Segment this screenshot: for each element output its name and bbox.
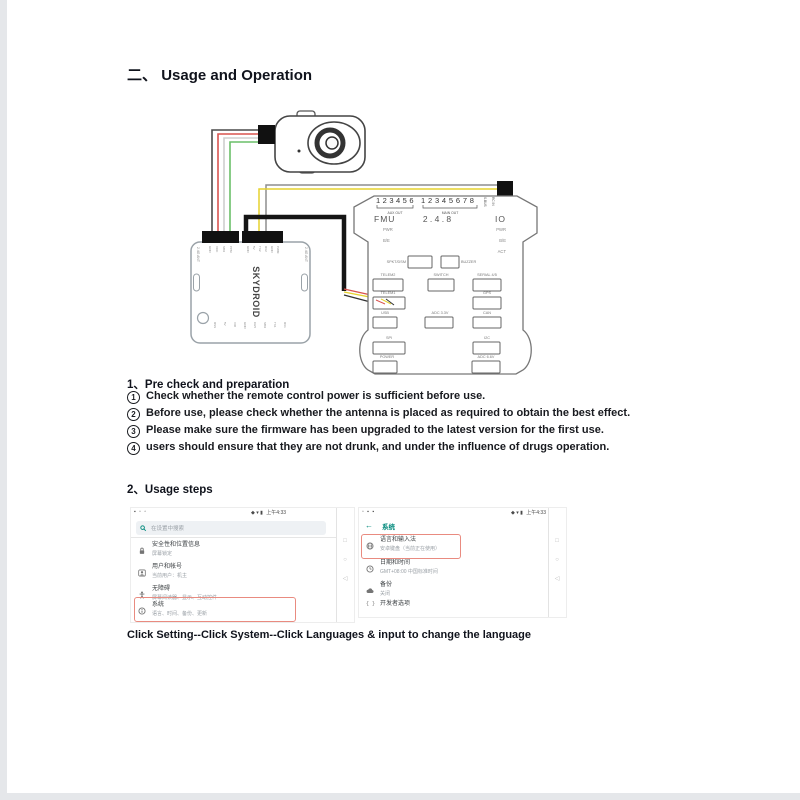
caption-text: Click Setting--Click System--Click Langu…	[127, 629, 531, 641]
receiver-brand: SKYDROID	[251, 266, 261, 318]
svg-text:PWR: PWR	[496, 227, 506, 232]
row-title: 开发者选项	[380, 601, 410, 608]
nav-back-button[interactable]: ◁	[343, 576, 348, 582]
backup-cloud-icon	[366, 582, 380, 600]
circled-number: 4	[127, 442, 140, 455]
svg-text:TX2: TX2	[258, 246, 262, 252]
receiver-connector-left	[202, 231, 239, 243]
fc-aux-pins: 123456	[376, 196, 416, 205]
clock-icon	[366, 560, 380, 578]
screenshot-settings: ▪ ▫ ▫ ◆ ▾ ▮ 上午4:33 在设置中搜索 安全性和位置信息 屏幕锁定	[130, 507, 355, 623]
android-nav-bar: □ ○ ◁	[549, 538, 565, 582]
svg-text:GND: GND	[208, 246, 212, 254]
nav-home-button[interactable]: ○	[555, 557, 559, 563]
svg-text:PPM: PPM	[229, 246, 233, 253]
system-row-developer[interactable]: { } 开发者选项	[359, 601, 410, 608]
list-item-text: users should ensure that they are not dr…	[146, 441, 609, 453]
fc-switch-label: SWITCH	[434, 273, 449, 277]
fc-telem1-label: TELEM1	[381, 291, 396, 295]
row-subtitle: 当前用户：机主	[152, 573, 187, 579]
page-bottom-margin	[0, 793, 800, 800]
row-title: 无障碍	[152, 586, 217, 593]
page-title: 二、 Usage and Operation	[127, 64, 312, 85]
status-right-icons: ◆ ▾ ▮	[511, 510, 523, 516]
camera-connector	[258, 125, 275, 144]
screw-hole	[198, 313, 209, 324]
fc-main-pins: 12345678	[421, 196, 477, 205]
fc-usb-label: USB	[381, 311, 389, 315]
svg-text:SBU: SBU	[222, 246, 226, 252]
circled-number: 3	[127, 425, 140, 438]
fc-telem2-label: TELEM2	[381, 273, 396, 277]
list-item-text: Please make sure the firmware has been u…	[146, 424, 604, 436]
svg-text:B/E: B/E	[383, 238, 390, 243]
status-time: 上午4:33	[526, 510, 546, 516]
nav-back-button[interactable]: ◁	[555, 576, 560, 582]
highlight-box-system	[134, 597, 296, 622]
fc-fmu-label: FMU	[374, 214, 395, 224]
ant-label-right: 2.4G ANT	[304, 247, 308, 262]
fc-io-label: IO	[495, 214, 506, 224]
circled-number: 1	[127, 391, 140, 404]
screenshot-system: ▫ ▪ ▪ ◆ ▾ ▮ 上午4:33 ← 系统 语言和输入法 安卓键盘（当前正在…	[358, 507, 567, 618]
svg-text:PWR: PWR	[383, 227, 393, 232]
fc-i2c-label: I2C	[484, 336, 490, 340]
app-header-title: 系统	[382, 521, 395, 531]
row-subtitle: GMT+08:00 中国标准时间	[380, 569, 438, 575]
flight-controller: 123456 AUX OUT 12345678 MAIN OUT S.BUS R…	[354, 196, 537, 374]
svg-text:SBU: SBU	[263, 322, 267, 328]
back-arrow-icon[interactable]: ←	[365, 522, 373, 530]
nav-home-button[interactable]: ○	[343, 557, 347, 563]
dev-braces-icon: { }	[366, 601, 380, 608]
fc-spi-label: SPI	[386, 336, 392, 340]
list-item: 4 users should ensure that they are not …	[127, 441, 707, 458]
system-list: ▫ ▪ ▪ ◆ ▾ ▮ 上午4:33 ← 系统 语言和输入法 安卓键盘（当前正在…	[359, 508, 549, 617]
divider	[131, 537, 336, 538]
svg-text:RX2: RX2	[264, 246, 268, 252]
app-header: ← 系统	[365, 521, 395, 531]
svg-text:5V: 5V	[223, 322, 227, 326]
svg-text:RX1: RX1	[283, 322, 287, 328]
precheck-list: 1 Check whether the remote control power…	[127, 390, 707, 458]
status-left-icons: ▫ ▪ ▪	[362, 509, 375, 515]
svg-text:5V: 5V	[252, 246, 256, 250]
svg-text:VCC: VCC	[215, 246, 219, 253]
status-time: 上午4:33	[266, 510, 286, 516]
nav-recents-button[interactable]: □	[343, 538, 347, 544]
fc-adc66-label: ADC 6.6V	[478, 355, 495, 359]
fc-sbus-label: S.BUS	[483, 197, 487, 207]
fc-serial45-label: SERIAL 4/5	[477, 273, 497, 277]
android-nav-bar: □ ○ ◁	[337, 538, 353, 582]
svg-text:RSS: RSS	[213, 322, 217, 328]
settings-row-security[interactable]: 安全性和位置信息 屏幕锁定	[131, 542, 200, 560]
fc-version-label: 2 . 4 . 8	[423, 214, 452, 224]
row-title: 安全性和位置信息	[152, 542, 200, 549]
settings-row-users[interactable]: 用户和帐号 当前用户：机主	[131, 564, 187, 582]
fc-spkt-label: SPKT/DSM	[387, 260, 406, 264]
list-item-text: Before use, please check whether the ant…	[146, 407, 630, 419]
svg-text:CH5: CH5	[253, 322, 257, 328]
row-title: 备份	[380, 582, 392, 589]
search-placeholder: 在设置中搜索	[151, 524, 184, 532]
fc-power-label: POWER	[380, 355, 395, 359]
status-bar: ▪ ▫ ▫ ◆ ▾ ▮ 上午4:33	[131, 509, 336, 517]
fc-gps-label: GPS	[483, 291, 491, 295]
svg-text:VID: VID	[233, 322, 237, 328]
page-left-margin	[0, 0, 7, 800]
svg-text:PWM: PWM	[276, 246, 280, 254]
skydroid-receiver: 2.4G ANT 2.4G ANT GND VCC SBU PPM GND 5V…	[191, 231, 310, 343]
page-title-text: Usage and Operation	[161, 67, 312, 84]
list-item: 2 Before use, please check whether the a…	[127, 407, 707, 424]
system-row-datetime[interactable]: 日期和时间 GMT+08:00 中国标准时间	[359, 560, 438, 578]
search-input[interactable]: 在设置中搜索	[136, 521, 326, 535]
user-card-icon	[138, 564, 152, 582]
row-subtitle: 关闭	[380, 591, 392, 597]
receiver-connector-right	[242, 231, 283, 243]
list-item: 1 Check whether the remote control power…	[127, 390, 707, 407]
wiring-diagram: 2.4G ANT 2.4G ANT GND VCC SBU PPM GND 5V…	[150, 105, 550, 385]
fc-adc33-label: ADC 3.3V	[432, 311, 449, 315]
settings-list: ▪ ▫ ▫ ◆ ▾ ▮ 上午4:33 在设置中搜索 安全性和位置信息 屏幕锁定	[131, 508, 337, 622]
status-right-icons: ◆ ▾ ▮	[251, 510, 263, 516]
fc-can-label: CAN	[483, 311, 491, 315]
row-title: 日期和时间	[380, 560, 438, 567]
section2-heading: 2、Usage steps	[127, 481, 213, 497]
status-bar: ▫ ▪ ▪ ◆ ▾ ▮ 上午4:33	[359, 509, 548, 517]
lock-icon	[138, 542, 152, 560]
system-row-backup[interactable]: 备份 关闭	[359, 582, 392, 600]
page-title-prefix: 二、	[127, 67, 157, 84]
svg-text:ACT: ACT	[498, 249, 507, 254]
row-subtitle: 屏幕锁定	[152, 551, 200, 557]
circled-number: 2	[127, 408, 140, 421]
svg-text:GND: GND	[270, 246, 274, 254]
fc-rcin-label: RC IN	[491, 197, 495, 206]
highlight-box-languages	[361, 534, 461, 559]
row-title: 用户和帐号	[152, 564, 187, 571]
svg-text:GND: GND	[246, 246, 250, 254]
fpv-camera	[258, 111, 365, 173]
list-item-text: Check whether the remote control power i…	[146, 390, 485, 402]
svg-text:TX1: TX1	[273, 322, 277, 328]
nav-recents-button[interactable]: □	[555, 538, 559, 544]
svg-text:B/E: B/E	[499, 238, 506, 243]
list-item: 3 Please make sure the firmware has been…	[127, 424, 707, 441]
status-left-icons: ▪ ▫ ▫	[134, 509, 147, 515]
svg-text:GND: GND	[243, 322, 247, 330]
search-icon	[140, 525, 147, 532]
fc-buzzer-label: BUZZER	[461, 260, 476, 264]
ant-label-left: 2.4G ANT	[196, 247, 200, 262]
